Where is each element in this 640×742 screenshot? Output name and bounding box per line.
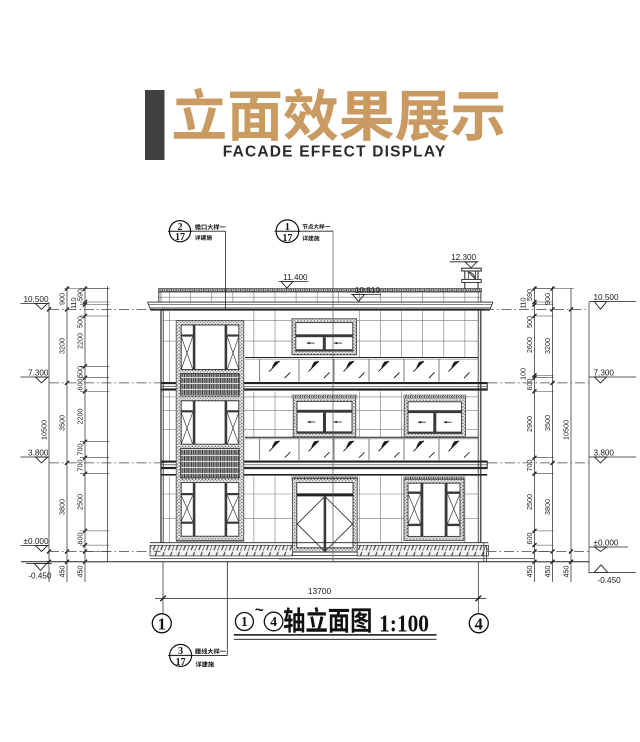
svg-text:3800: 3800: [58, 499, 67, 515]
svg-text:500: 500: [76, 366, 85, 378]
svg-text:100: 100: [519, 368, 528, 380]
svg-text:FACADE EFFECT DISPLAY: FACADE EFFECT DISPLAY: [223, 144, 447, 161]
svg-text:3: 3: [178, 646, 183, 657]
svg-text:10.810: 10.810: [355, 286, 380, 295]
svg-text:±0.000: ±0.000: [594, 538, 619, 547]
svg-text:600: 600: [76, 533, 85, 545]
svg-text:3200: 3200: [58, 338, 67, 354]
svg-text:1:100: 1:100: [379, 612, 429, 638]
svg-text:600: 600: [76, 379, 85, 391]
svg-text:500: 500: [76, 316, 85, 328]
svg-text:450: 450: [525, 566, 534, 578]
svg-text:17: 17: [282, 233, 292, 244]
svg-text:10500: 10500: [562, 420, 571, 440]
svg-text:3500: 3500: [58, 415, 67, 431]
svg-text:7.300: 7.300: [28, 368, 49, 377]
svg-text:700: 700: [76, 444, 85, 456]
svg-text:3.800: 3.800: [594, 448, 615, 457]
svg-text:110: 110: [69, 297, 78, 308]
svg-text:2500: 2500: [76, 494, 85, 510]
svg-text:10500: 10500: [40, 420, 49, 440]
svg-text:3800: 3800: [543, 499, 552, 515]
svg-text:-0.450: -0.450: [28, 572, 52, 581]
svg-text:4: 4: [270, 614, 277, 629]
svg-text:7.300: 7.300: [594, 368, 615, 377]
svg-text:1: 1: [158, 614, 166, 633]
svg-text:10.500: 10.500: [23, 295, 48, 304]
svg-text:450: 450: [58, 566, 67, 578]
svg-text:12.300: 12.300: [451, 253, 476, 262]
svg-text:900: 900: [543, 293, 552, 305]
svg-text:±0.000: ±0.000: [24, 537, 49, 546]
svg-text:600: 600: [525, 379, 534, 391]
svg-text:17: 17: [176, 657, 186, 668]
svg-text:110: 110: [519, 297, 528, 308]
svg-text:2500: 2500: [525, 494, 534, 510]
svg-text:~: ~: [255, 602, 264, 619]
svg-text:600: 600: [525, 533, 534, 545]
svg-text:450: 450: [543, 566, 552, 578]
svg-text:4: 4: [475, 614, 483, 633]
svg-text:1: 1: [285, 222, 290, 233]
svg-text:2900: 2900: [525, 416, 534, 432]
svg-text:-0.450: -0.450: [598, 576, 622, 585]
svg-text:3200: 3200: [543, 338, 552, 354]
svg-text:2200: 2200: [76, 333, 85, 349]
svg-text:3500: 3500: [543, 415, 552, 431]
svg-text:10.500: 10.500: [594, 293, 619, 302]
svg-text:700: 700: [76, 460, 85, 472]
svg-text:900: 900: [58, 293, 67, 305]
svg-text:3.800: 3.800: [28, 448, 49, 457]
svg-text:1: 1: [241, 614, 248, 629]
svg-text:13700: 13700: [308, 586, 332, 596]
svg-text:450: 450: [562, 566, 571, 578]
svg-text:700: 700: [525, 460, 534, 472]
svg-text:500: 500: [525, 316, 534, 328]
svg-text:2600: 2600: [525, 337, 534, 353]
svg-text:2200: 2200: [76, 409, 85, 425]
svg-text:17: 17: [175, 232, 185, 243]
svg-text:11.400: 11.400: [283, 273, 308, 282]
svg-text:450: 450: [76, 566, 85, 578]
